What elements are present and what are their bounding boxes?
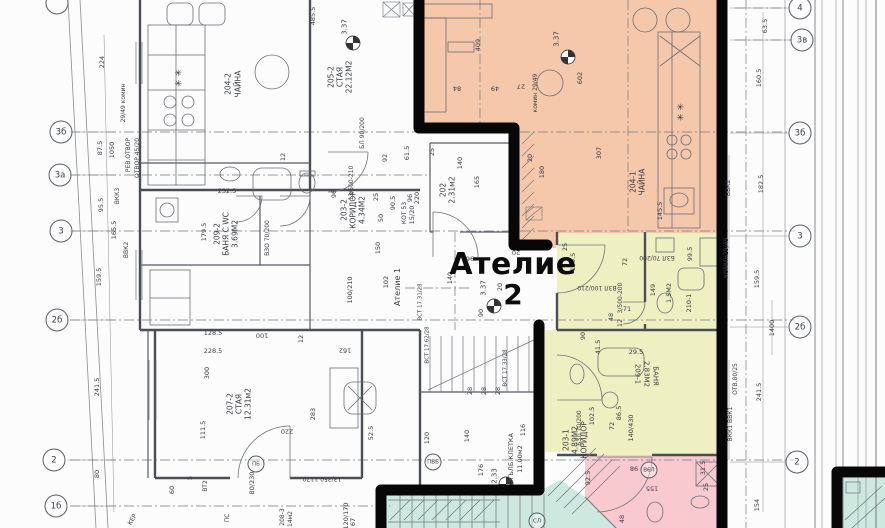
plan-text: 90.5 <box>390 196 397 210</box>
plan-text: 29/49 комин <box>121 84 127 123</box>
plan-text: СТЪЛБ.КЛЕТКА <box>508 433 515 485</box>
plan-text: 160.5 <box>756 69 763 88</box>
grid-bubble: 2б <box>46 309 69 332</box>
plan-text: 1400 <box>769 320 776 337</box>
grid-bubble <box>46 0 69 15</box>
plan-text: 41.5 <box>595 340 602 354</box>
plan-text: 3.69М2 <box>231 220 239 248</box>
plan-text: 2.83М2 <box>643 361 650 387</box>
plan-text: 165.5 <box>111 221 118 240</box>
plan-text: 2.33 <box>492 468 499 484</box>
plan-text: ЧАЙНА <box>234 71 242 98</box>
plan-text: БЛ 90/200 <box>360 117 366 149</box>
labels-layer: 22487.5105095.5159.5241.58029/49 коминВК… <box>0 0 885 528</box>
plan-text: СТАЯ <box>235 394 243 414</box>
grid-bubble: 3б <box>50 121 73 144</box>
grid-bubble: 4 <box>789 0 812 20</box>
plan-text: 3.37 <box>554 31 561 47</box>
plan-text: 202 <box>439 183 447 197</box>
plan-text: 13/500-210 <box>349 166 355 201</box>
unit-name: Ателие <box>448 249 578 281</box>
plan-text: 140 <box>464 430 471 442</box>
plan-text: 12 <box>617 319 624 327</box>
plan-text: 72 <box>609 422 616 430</box>
plan-text: 283 <box>310 408 317 420</box>
plan-text: 140/430 <box>628 414 635 441</box>
plan-text: 162 <box>339 347 351 354</box>
plan-text: ВКК1 ВВК1 <box>728 407 734 442</box>
plan-text: 25 <box>373 193 380 201</box>
floor-plan: 22487.5105095.5159.5241.58029/49 коминВК… <box>0 0 885 528</box>
plan-text: 61.5 <box>404 146 411 160</box>
plan-text: 2.31м2 <box>448 176 456 203</box>
plan-text: 116 <box>520 424 527 436</box>
circle-label: ПБ <box>248 456 265 473</box>
plan-text: 241.5 <box>94 378 101 397</box>
plan-text: 90 <box>478 309 485 317</box>
plan-text: 159.5 <box>96 268 103 287</box>
plan-text: 72 <box>622 258 629 266</box>
unit-number: 2 <box>448 281 578 309</box>
grid-bubble: 3б <box>789 122 812 145</box>
plan-text: 111.5 <box>200 421 207 440</box>
plan-text: ПС <box>225 514 231 523</box>
plan-text: 15/20 <box>409 206 416 225</box>
plan-text: 100/210 <box>347 276 354 303</box>
grid-bubble: 3 <box>789 225 812 248</box>
grid-bubble: 3 <box>50 220 73 243</box>
plan-text: ВСТ 17.62/28 <box>425 326 431 363</box>
plan-text: 485.5 <box>310 7 317 26</box>
plan-text: 80/230 <box>249 472 256 495</box>
plan-text: 31.5 <box>700 461 707 475</box>
plan-text: БАНЯ С WC <box>222 212 230 256</box>
circle-label: СЛ <box>529 513 546 528</box>
plan-text: 12.31м2 <box>244 388 252 420</box>
plan-text: 120 <box>424 432 431 444</box>
plan-text: 60 <box>169 486 176 494</box>
plan-text: 27 <box>517 83 525 90</box>
plan-text: 300 <box>204 367 211 379</box>
plan-text: 20 <box>527 154 534 162</box>
plan-text: 220 <box>414 192 421 204</box>
plan-text: 100 <box>256 332 268 339</box>
plan-text: 165 <box>474 176 481 188</box>
plan-text: СТАЯ <box>336 67 344 87</box>
plan-text: ОТВ.80/25 <box>733 363 739 395</box>
plan-text: 12 <box>280 153 287 161</box>
plan-text: 5 <box>187 476 194 480</box>
plan-text: 49 <box>491 85 499 92</box>
plan-text: 28 <box>467 387 474 395</box>
plan-text: 209-2 <box>213 223 221 245</box>
plan-text: 98 <box>630 465 638 472</box>
plan-text: 52.5 <box>368 426 375 440</box>
plan-text: 48 <box>608 313 615 321</box>
plan-text: 96 <box>331 190 338 198</box>
plan-text: 155 <box>646 485 658 492</box>
plan-text: 180 <box>539 166 546 178</box>
grid-bubble: 2б <box>789 316 812 339</box>
grid-bubble: 2 <box>43 449 66 472</box>
plan-text: 63.5 <box>762 19 769 33</box>
plan-text: 232.5 <box>218 188 237 195</box>
plan-text: 25 <box>703 483 710 491</box>
plan-text: 159.5 <box>754 270 761 289</box>
plan-text: 182.5 <box>758 175 765 194</box>
plan-text: 1.5М2 <box>666 283 673 303</box>
plan-text: 48 <box>619 515 626 523</box>
plan-text: 4.34М2 <box>358 196 366 224</box>
plan-text: ✳ ✳ <box>678 103 687 121</box>
plan-text: 204-2 <box>224 73 232 95</box>
plan-text: 220 <box>281 428 293 435</box>
plan-text: 205-2 <box>327 66 335 88</box>
circle-label: В6Л <box>641 462 658 479</box>
plan-text: 203-1 <box>562 429 570 451</box>
plan-text: 409 <box>475 39 482 51</box>
plan-text: 87.5 <box>97 141 104 155</box>
plan-text: КОМИН29/49 <box>724 238 730 278</box>
plan-text: 102 <box>383 276 390 288</box>
plan-text: 4.89М2 <box>571 426 579 454</box>
plan-text: 11.00м2 <box>517 445 524 473</box>
plan-text: 207-2 <box>226 393 234 415</box>
plan-text: 67 <box>350 518 357 526</box>
plan-text: 149 <box>650 284 657 296</box>
plan-text: 84 <box>453 85 461 92</box>
plan-text: 154 <box>754 499 761 511</box>
plan-text: 28 <box>495 387 502 395</box>
plan-text: 3.37 <box>342 19 349 35</box>
plan-text: 209-1 <box>634 364 641 384</box>
plan-text: ✳ ✳ <box>176 69 185 87</box>
plan-text: КЕР <box>127 513 138 526</box>
plan-text: 12 <box>298 335 305 343</box>
plan-text: 95.5 <box>98 198 105 212</box>
plan-text: БАНЯ <box>652 366 659 386</box>
plan-text: 179.5 <box>201 223 208 242</box>
plan-text: ОТВОР 45/20 <box>135 138 141 178</box>
plan-text: 203-2 <box>340 199 348 221</box>
plan-text: ВЗЛ 100/210 <box>577 284 616 290</box>
plan-text: 176 <box>478 464 485 476</box>
plan-text: 71 <box>623 306 631 313</box>
plan-text: ВТ2 <box>203 480 209 492</box>
plan-text: 29.5 <box>629 349 643 356</box>
plan-text: 210-1 <box>686 294 693 313</box>
plan-text: 307 <box>596 147 603 159</box>
plan-text: 241.5 <box>756 383 763 402</box>
plan-text: 80 <box>94 470 101 478</box>
plan-text: 14м2 <box>288 511 294 527</box>
plan-text: 99.5 <box>687 247 694 261</box>
plan-text: 92.5 <box>585 471 592 485</box>
plan-text: 92 <box>382 154 389 162</box>
plan-text: 25 <box>429 148 436 156</box>
plan-text: ВКК3 <box>115 188 121 204</box>
plan-text: 90 <box>580 332 587 340</box>
grid-bubble: 3а <box>49 164 72 187</box>
plan-text: 150 <box>375 242 382 254</box>
unit-label: Ателие 2 <box>448 249 578 309</box>
plan-text: 28 <box>481 387 488 395</box>
plan-text: 208-3 <box>280 508 286 525</box>
plan-text: ВСТ 17.31/28 <box>418 283 424 320</box>
plan-text: 140 <box>457 157 464 169</box>
plan-text: Ателие 1 <box>394 268 402 306</box>
grid-bubble: 1б <box>45 495 68 518</box>
plan-text: 13/350-1170 <box>303 475 342 481</box>
plan-text: 128.5 <box>204 330 223 337</box>
plan-text: 102.5 <box>589 407 596 426</box>
plan-text: 86.5 <box>616 406 623 420</box>
plan-text: комин 29/49 <box>533 74 539 113</box>
plan-text: ЧАЙНА <box>638 169 646 196</box>
plan-text: ВВК2 <box>124 242 130 258</box>
plan-text: ВЗО 70/200 <box>265 220 271 256</box>
grid-bubble: 3в <box>791 29 814 52</box>
plan-text: 22.12М2 <box>345 61 353 94</box>
plan-text: ВСТ 17.33/28 <box>503 349 509 386</box>
plan-text: ВВК2 <box>726 180 732 196</box>
plan-text: РЕВ.ОТВОР <box>126 138 132 172</box>
plan-text: 224 <box>99 56 106 68</box>
plan-text: 602 <box>577 72 584 84</box>
grid-bubble: 2 <box>786 451 809 474</box>
plan-text: 50 <box>378 214 385 222</box>
plan-text: 1050 <box>109 142 116 159</box>
plan-text: КОРИДОР <box>580 421 588 459</box>
circle-label: ПВБ <box>425 454 442 471</box>
plan-text: 145.5 <box>657 202 664 221</box>
plan-text: 204-1 <box>629 171 637 193</box>
plan-text: Б3Л 70/200 <box>639 254 674 260</box>
plan-text: 228.5 <box>204 348 223 355</box>
